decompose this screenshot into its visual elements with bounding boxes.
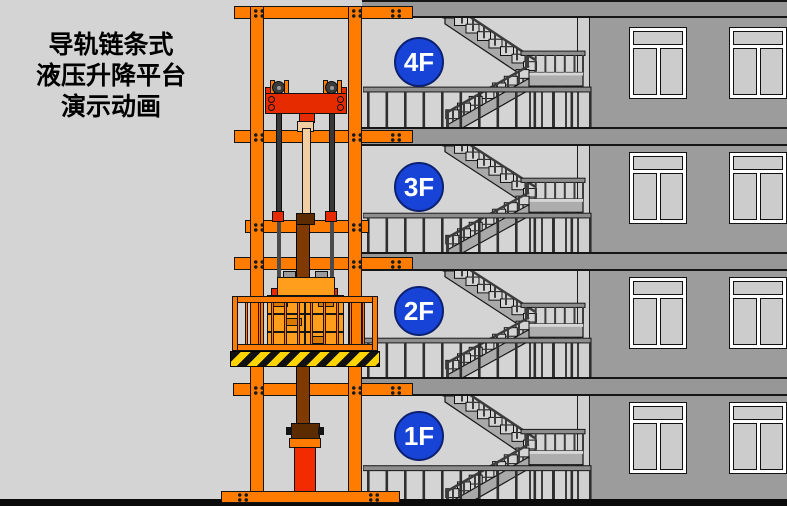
crate-divider [268, 331, 343, 333]
window [629, 27, 687, 99]
cage-baluster [310, 300, 313, 346]
cylinder-clamp [291, 423, 320, 439]
platform-top-rail [232, 296, 378, 303]
bolt-group [366, 492, 379, 502]
bolt-group [251, 259, 264, 269]
title-line-3: 演示动画 [10, 92, 212, 123]
window-pane [760, 173, 784, 220]
staircase [363, 396, 594, 506]
bolt-group [251, 132, 264, 142]
floor-badge-3f: 3F [394, 162, 444, 212]
cage-baluster [271, 300, 274, 346]
piston-rod-upper [302, 128, 311, 217]
cargo-crates [267, 295, 344, 351]
floor-badge-label: 1F [404, 421, 434, 452]
bolt-ring [268, 104, 275, 111]
sprocket-axle [330, 86, 334, 90]
page-title: 导轨链条式 液压升降平台 演示动画 [10, 30, 212, 123]
bolt-group [388, 385, 401, 395]
cage-baluster [258, 300, 261, 346]
floor-badge-label: 2F [404, 296, 434, 327]
bolt-group [349, 222, 362, 232]
window-transom-pane [733, 156, 783, 170]
animation-stage: 4F 3F 2F 1F 导轨链条式 液压升降平台 演示动画 [0, 0, 787, 506]
window-pane [633, 298, 657, 345]
sprocket-carriage [265, 93, 347, 114]
cage-baluster [336, 300, 339, 346]
bolt-ring [268, 96, 275, 103]
cargo-top-box [277, 277, 335, 296]
window-pane [633, 423, 657, 470]
floor-badge-label: 4F [404, 47, 434, 78]
window-transom-pane [633, 281, 683, 295]
floor-slab [362, 0, 787, 18]
window [629, 402, 687, 474]
bolt-group [251, 222, 264, 232]
chain-anchor [325, 211, 337, 222]
window-transom-pane [633, 406, 683, 420]
platform-bottom-rail [232, 344, 378, 351]
bolt-group [388, 8, 401, 18]
window-transom-pane [733, 281, 783, 295]
bolt-group [349, 259, 362, 269]
bolt-group [388, 132, 401, 142]
window [729, 277, 787, 349]
window-pane [733, 423, 757, 470]
window-pane [733, 298, 757, 345]
cage-baluster [349, 300, 352, 346]
floor-badge-1f: 1F [394, 411, 444, 461]
window-pane [660, 173, 684, 220]
cage-baluster [245, 300, 248, 346]
bolt-group [349, 385, 362, 395]
window-pane [760, 298, 784, 345]
cage-baluster [284, 300, 287, 346]
sprocket-axle [277, 86, 281, 90]
window-pane [660, 298, 684, 345]
window-pane [633, 48, 657, 95]
platform-hazard-strip [230, 351, 380, 367]
bolt-group [251, 8, 264, 18]
crate-divider [304, 296, 306, 350]
bolt-group [349, 8, 362, 18]
floor-slab [362, 252, 787, 271]
bolt-group [235, 492, 248, 502]
window [629, 277, 687, 349]
platform-side-post [372, 296, 378, 351]
crate-divider [268, 313, 343, 315]
hydraulic-cylinder [294, 447, 316, 492]
title-line-2: 液压升降平台 [10, 61, 212, 92]
bolt-group [349, 132, 362, 142]
bolt-ring [337, 104, 344, 111]
clamp-tab [286, 427, 292, 435]
window-pane [760, 423, 784, 470]
cage-baluster [362, 300, 365, 346]
cage-baluster [323, 300, 326, 346]
window [629, 152, 687, 224]
window-pane [660, 423, 684, 470]
floor-slab [362, 377, 787, 396]
window-pane [733, 173, 757, 220]
guide-column-left [250, 6, 264, 492]
title-line-1: 导轨链条式 [10, 30, 212, 61]
cage-baluster [297, 300, 300, 346]
floor-badge-2f: 2F [394, 286, 444, 336]
window [729, 402, 787, 474]
bolt-group [388, 259, 401, 269]
floor-slab [362, 127, 787, 146]
window [729, 152, 787, 224]
window-transom-pane [733, 31, 783, 45]
window [729, 27, 787, 99]
window-transom-pane [633, 31, 683, 45]
window-pane [760, 48, 784, 95]
guide-column-right [348, 6, 362, 492]
clamp-tab [318, 427, 324, 435]
bolt-ring [337, 96, 344, 103]
bolt-group [251, 385, 264, 395]
window-pane [633, 173, 657, 220]
platform-side-post [232, 296, 238, 351]
window-pane [660, 48, 684, 95]
floor-badge-label: 3F [404, 172, 434, 203]
window-pane [733, 48, 757, 95]
floor-badge-4f: 4F [394, 37, 444, 87]
chain-anchor [272, 211, 284, 222]
window-transom-pane [633, 156, 683, 170]
window-transom-pane [733, 406, 783, 420]
